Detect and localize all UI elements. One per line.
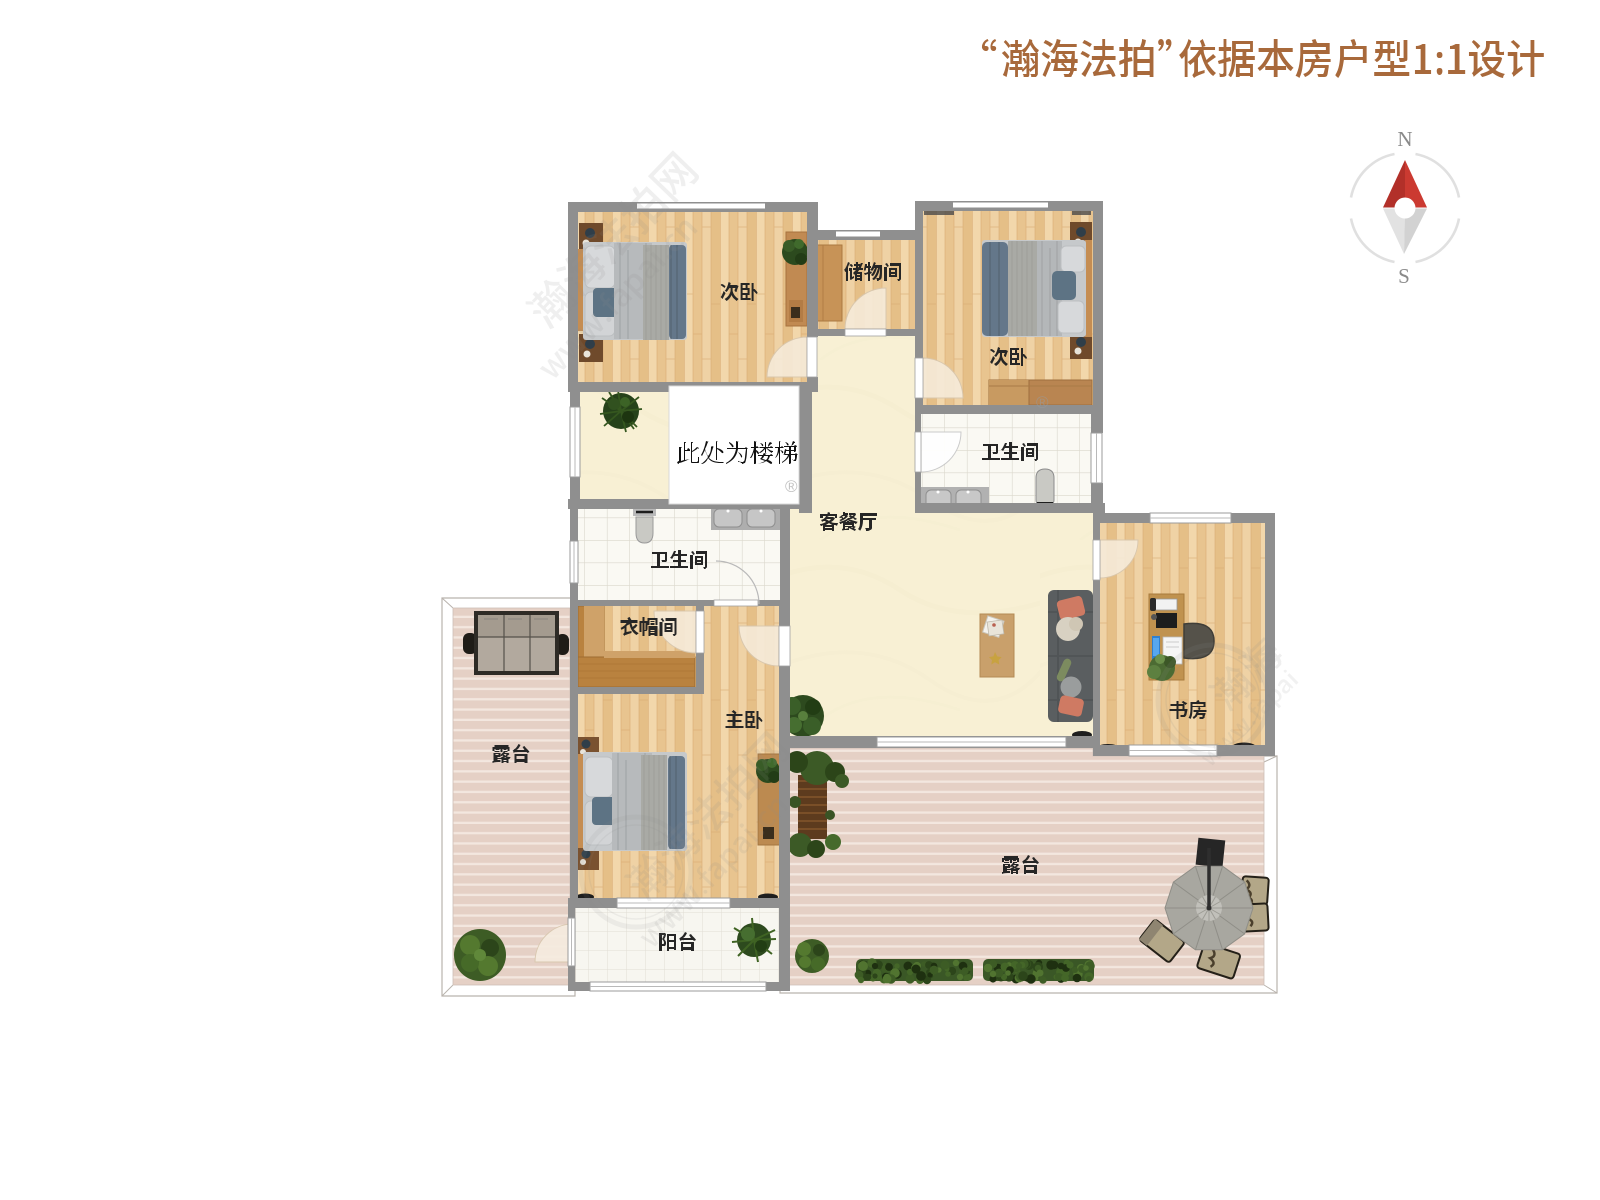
svg-text:S: S	[1398, 264, 1410, 288]
svg-text:N: N	[1397, 127, 1412, 151]
svg-text:®: ®	[1036, 393, 1049, 412]
svg-text:®: ®	[785, 477, 798, 496]
